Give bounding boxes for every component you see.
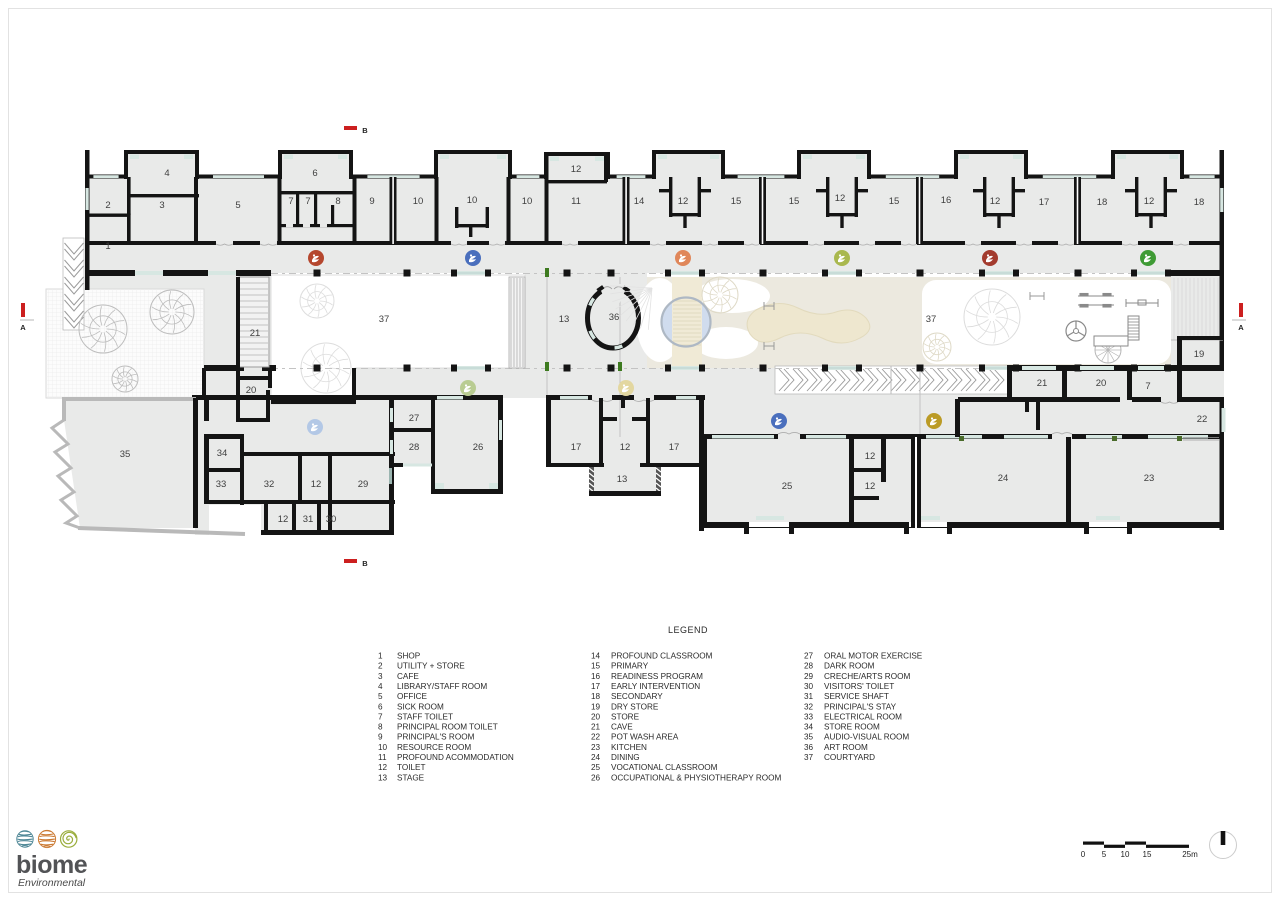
- svg-text:26: 26: [591, 773, 601, 782]
- svg-text:30: 30: [804, 682, 814, 691]
- svg-text:18: 18: [591, 692, 601, 701]
- svg-text:15: 15: [731, 196, 742, 207]
- svg-text:33: 33: [804, 712, 814, 721]
- svg-text:6: 6: [378, 702, 383, 711]
- svg-text:23: 23: [591, 743, 601, 752]
- svg-text:VISITORS' TOILET: VISITORS' TOILET: [824, 682, 894, 691]
- svg-text:PROFOUND ACOMMODATION: PROFOUND ACOMMODATION: [397, 753, 514, 762]
- svg-text:21: 21: [591, 723, 601, 732]
- svg-text:DRY STORE: DRY STORE: [611, 702, 659, 711]
- svg-text:17: 17: [669, 442, 680, 453]
- svg-text:4: 4: [378, 682, 383, 691]
- svg-text:28: 28: [804, 662, 814, 671]
- svg-text:12: 12: [865, 451, 876, 462]
- svg-text:B: B: [362, 126, 368, 135]
- svg-text:16: 16: [941, 195, 952, 206]
- svg-text:5: 5: [235, 200, 240, 211]
- svg-text:7: 7: [1145, 381, 1150, 392]
- svg-text:25: 25: [591, 763, 601, 772]
- svg-text:STAGE: STAGE: [397, 773, 425, 782]
- svg-text:15: 15: [1143, 850, 1152, 859]
- svg-text:24: 24: [591, 753, 601, 762]
- svg-text:15: 15: [591, 662, 601, 671]
- svg-text:32: 32: [804, 702, 814, 711]
- svg-text:17: 17: [591, 682, 601, 691]
- svg-text:KITCHEN: KITCHEN: [611, 743, 647, 752]
- svg-text:31: 31: [804, 692, 814, 701]
- svg-text:7: 7: [305, 196, 310, 207]
- svg-text:SERVICE SHAFT: SERVICE SHAFT: [824, 692, 889, 701]
- svg-text:8: 8: [378, 723, 383, 732]
- svg-text:PRIMARY: PRIMARY: [611, 662, 649, 671]
- svg-text:10: 10: [467, 195, 478, 206]
- svg-text:9: 9: [369, 196, 374, 207]
- svg-text:13: 13: [559, 314, 570, 325]
- svg-text:STORE: STORE: [611, 712, 640, 721]
- svg-text:22: 22: [1197, 414, 1208, 425]
- svg-text:1: 1: [378, 652, 383, 661]
- svg-text:PROFOUND CLASSROOM: PROFOUND CLASSROOM: [611, 652, 713, 661]
- svg-text:ELECTRICAL ROOM: ELECTRICAL ROOM: [824, 712, 902, 721]
- svg-text:10: 10: [378, 743, 388, 752]
- svg-text:24: 24: [998, 473, 1009, 484]
- svg-text:OCCUPATIONAL & PHYSIOTHERAPY R: OCCUPATIONAL & PHYSIOTHERAPY ROOM: [611, 773, 781, 782]
- svg-text:22: 22: [591, 733, 601, 742]
- svg-text:6: 6: [312, 168, 317, 179]
- svg-text:COURTYARD: COURTYARD: [824, 753, 875, 762]
- svg-text:5: 5: [378, 692, 383, 701]
- svg-text:CRECHE/ARTS ROOM: CRECHE/ARTS ROOM: [824, 672, 910, 681]
- svg-text:VOCATIONAL CLASSROOM: VOCATIONAL CLASSROOM: [611, 763, 718, 772]
- svg-text:15: 15: [789, 196, 800, 207]
- svg-text:25m: 25m: [1182, 850, 1198, 859]
- svg-text:DARK ROOM: DARK ROOM: [824, 662, 875, 671]
- svg-text:15: 15: [889, 196, 900, 207]
- svg-text:ORAL MOTOR EXERCISE: ORAL MOTOR EXERCISE: [824, 652, 923, 661]
- svg-text:20: 20: [246, 385, 257, 396]
- svg-text:A: A: [1238, 323, 1244, 332]
- svg-text:12: 12: [678, 196, 689, 207]
- svg-text:20: 20: [1096, 378, 1107, 389]
- svg-text:13: 13: [378, 773, 388, 782]
- svg-text:20: 20: [591, 712, 601, 721]
- svg-text:Environmental: Environmental: [18, 877, 86, 889]
- svg-text:POT WASH AREA: POT WASH AREA: [611, 733, 679, 742]
- svg-text:12: 12: [990, 196, 1001, 207]
- svg-text:18: 18: [1194, 197, 1205, 208]
- svg-text:37: 37: [379, 314, 390, 325]
- svg-text:10: 10: [522, 196, 533, 207]
- svg-text:LEGEND: LEGEND: [668, 625, 708, 635]
- svg-text:12: 12: [278, 514, 289, 525]
- svg-text:RESOURCE ROOM: RESOURCE ROOM: [397, 743, 471, 752]
- svg-text:TOILET: TOILET: [397, 763, 426, 772]
- svg-text:16: 16: [591, 672, 601, 681]
- svg-text:1: 1: [105, 241, 110, 252]
- svg-text:9: 9: [378, 733, 383, 742]
- svg-text:29: 29: [804, 672, 814, 681]
- svg-text:10: 10: [1121, 850, 1130, 859]
- svg-text:26: 26: [473, 442, 484, 453]
- svg-text:28: 28: [409, 442, 420, 453]
- svg-text:3: 3: [159, 200, 164, 211]
- svg-text:19: 19: [1194, 349, 1205, 360]
- svg-text:12: 12: [1144, 196, 1155, 207]
- svg-text:31: 31: [303, 514, 314, 525]
- svg-text:27: 27: [409, 413, 420, 424]
- svg-text:17: 17: [571, 442, 582, 453]
- svg-text:12: 12: [311, 479, 322, 490]
- svg-text:36: 36: [609, 312, 620, 323]
- svg-text:EARLY INTERVENTION: EARLY INTERVENTION: [611, 682, 700, 691]
- svg-text:7: 7: [288, 196, 293, 207]
- svg-text:35: 35: [120, 449, 131, 460]
- svg-text:0: 0: [1081, 850, 1086, 859]
- svg-text:19: 19: [591, 702, 601, 711]
- svg-text:LIBRARY/STAFF ROOM: LIBRARY/STAFF ROOM: [397, 682, 487, 691]
- svg-text:2: 2: [378, 662, 383, 671]
- svg-text:21: 21: [250, 328, 261, 339]
- svg-text:READINESS PROGRAM: READINESS PROGRAM: [611, 672, 703, 681]
- svg-text:29: 29: [358, 479, 369, 490]
- svg-text:5: 5: [1102, 850, 1107, 859]
- svg-text:34: 34: [804, 723, 814, 732]
- svg-text:12: 12: [378, 763, 388, 772]
- svg-text:4: 4: [164, 168, 169, 179]
- svg-text:PRINCIPAL'S ROOM: PRINCIPAL'S ROOM: [397, 733, 475, 742]
- svg-text:33: 33: [216, 479, 227, 490]
- svg-text:25: 25: [782, 481, 793, 492]
- svg-text:10: 10: [413, 196, 424, 207]
- svg-text:B: B: [362, 559, 368, 568]
- svg-text:OFFICE: OFFICE: [397, 692, 428, 701]
- svg-text:STORE ROOM: STORE ROOM: [824, 723, 880, 732]
- svg-text:36: 36: [804, 743, 814, 752]
- svg-text:SECONDARY: SECONDARY: [611, 692, 663, 701]
- svg-text:23: 23: [1144, 473, 1155, 484]
- svg-text:30: 30: [326, 514, 337, 525]
- svg-text:CAFE: CAFE: [397, 672, 419, 681]
- svg-text:11: 11: [571, 196, 581, 207]
- svg-text:18: 18: [1097, 197, 1108, 208]
- svg-text:35: 35: [804, 733, 814, 742]
- svg-text:PRINCIPAL ROOM TOILET: PRINCIPAL ROOM TOILET: [397, 723, 498, 732]
- svg-text:12: 12: [620, 442, 631, 453]
- svg-text:11: 11: [378, 753, 387, 762]
- svg-text:14: 14: [591, 652, 601, 661]
- svg-text:3: 3: [378, 672, 383, 681]
- svg-text:37: 37: [926, 314, 937, 325]
- svg-text:14: 14: [634, 196, 645, 207]
- svg-text:STAFF TOILET: STAFF TOILET: [397, 712, 453, 721]
- svg-text:17: 17: [1039, 197, 1050, 208]
- svg-text:12: 12: [835, 193, 846, 204]
- svg-text:UTILITY + STORE: UTILITY + STORE: [397, 662, 465, 671]
- svg-text:ART ROOM: ART ROOM: [824, 743, 868, 752]
- svg-text:32: 32: [264, 479, 275, 490]
- svg-text:12: 12: [865, 481, 876, 492]
- svg-text:37: 37: [804, 753, 814, 762]
- svg-text:34: 34: [217, 448, 228, 459]
- svg-text:13: 13: [617, 474, 628, 485]
- svg-text:2: 2: [105, 200, 110, 211]
- svg-text:27: 27: [804, 652, 814, 661]
- svg-text:SHOP: SHOP: [397, 652, 421, 661]
- svg-text:12: 12: [571, 164, 582, 175]
- svg-text:PRINCIPAL'S STAY: PRINCIPAL'S STAY: [824, 702, 897, 711]
- svg-text:DINING: DINING: [611, 753, 640, 762]
- svg-text:CAVE: CAVE: [611, 723, 633, 732]
- svg-text:AUDIO-VISUAL ROOM: AUDIO-VISUAL ROOM: [824, 733, 909, 742]
- svg-text:8: 8: [335, 196, 340, 207]
- svg-text:A: A: [20, 323, 26, 332]
- svg-text:SICK ROOM: SICK ROOM: [397, 702, 444, 711]
- svg-text:7: 7: [378, 712, 383, 721]
- svg-text:biome: biome: [16, 851, 88, 879]
- svg-text:21: 21: [1037, 378, 1048, 389]
